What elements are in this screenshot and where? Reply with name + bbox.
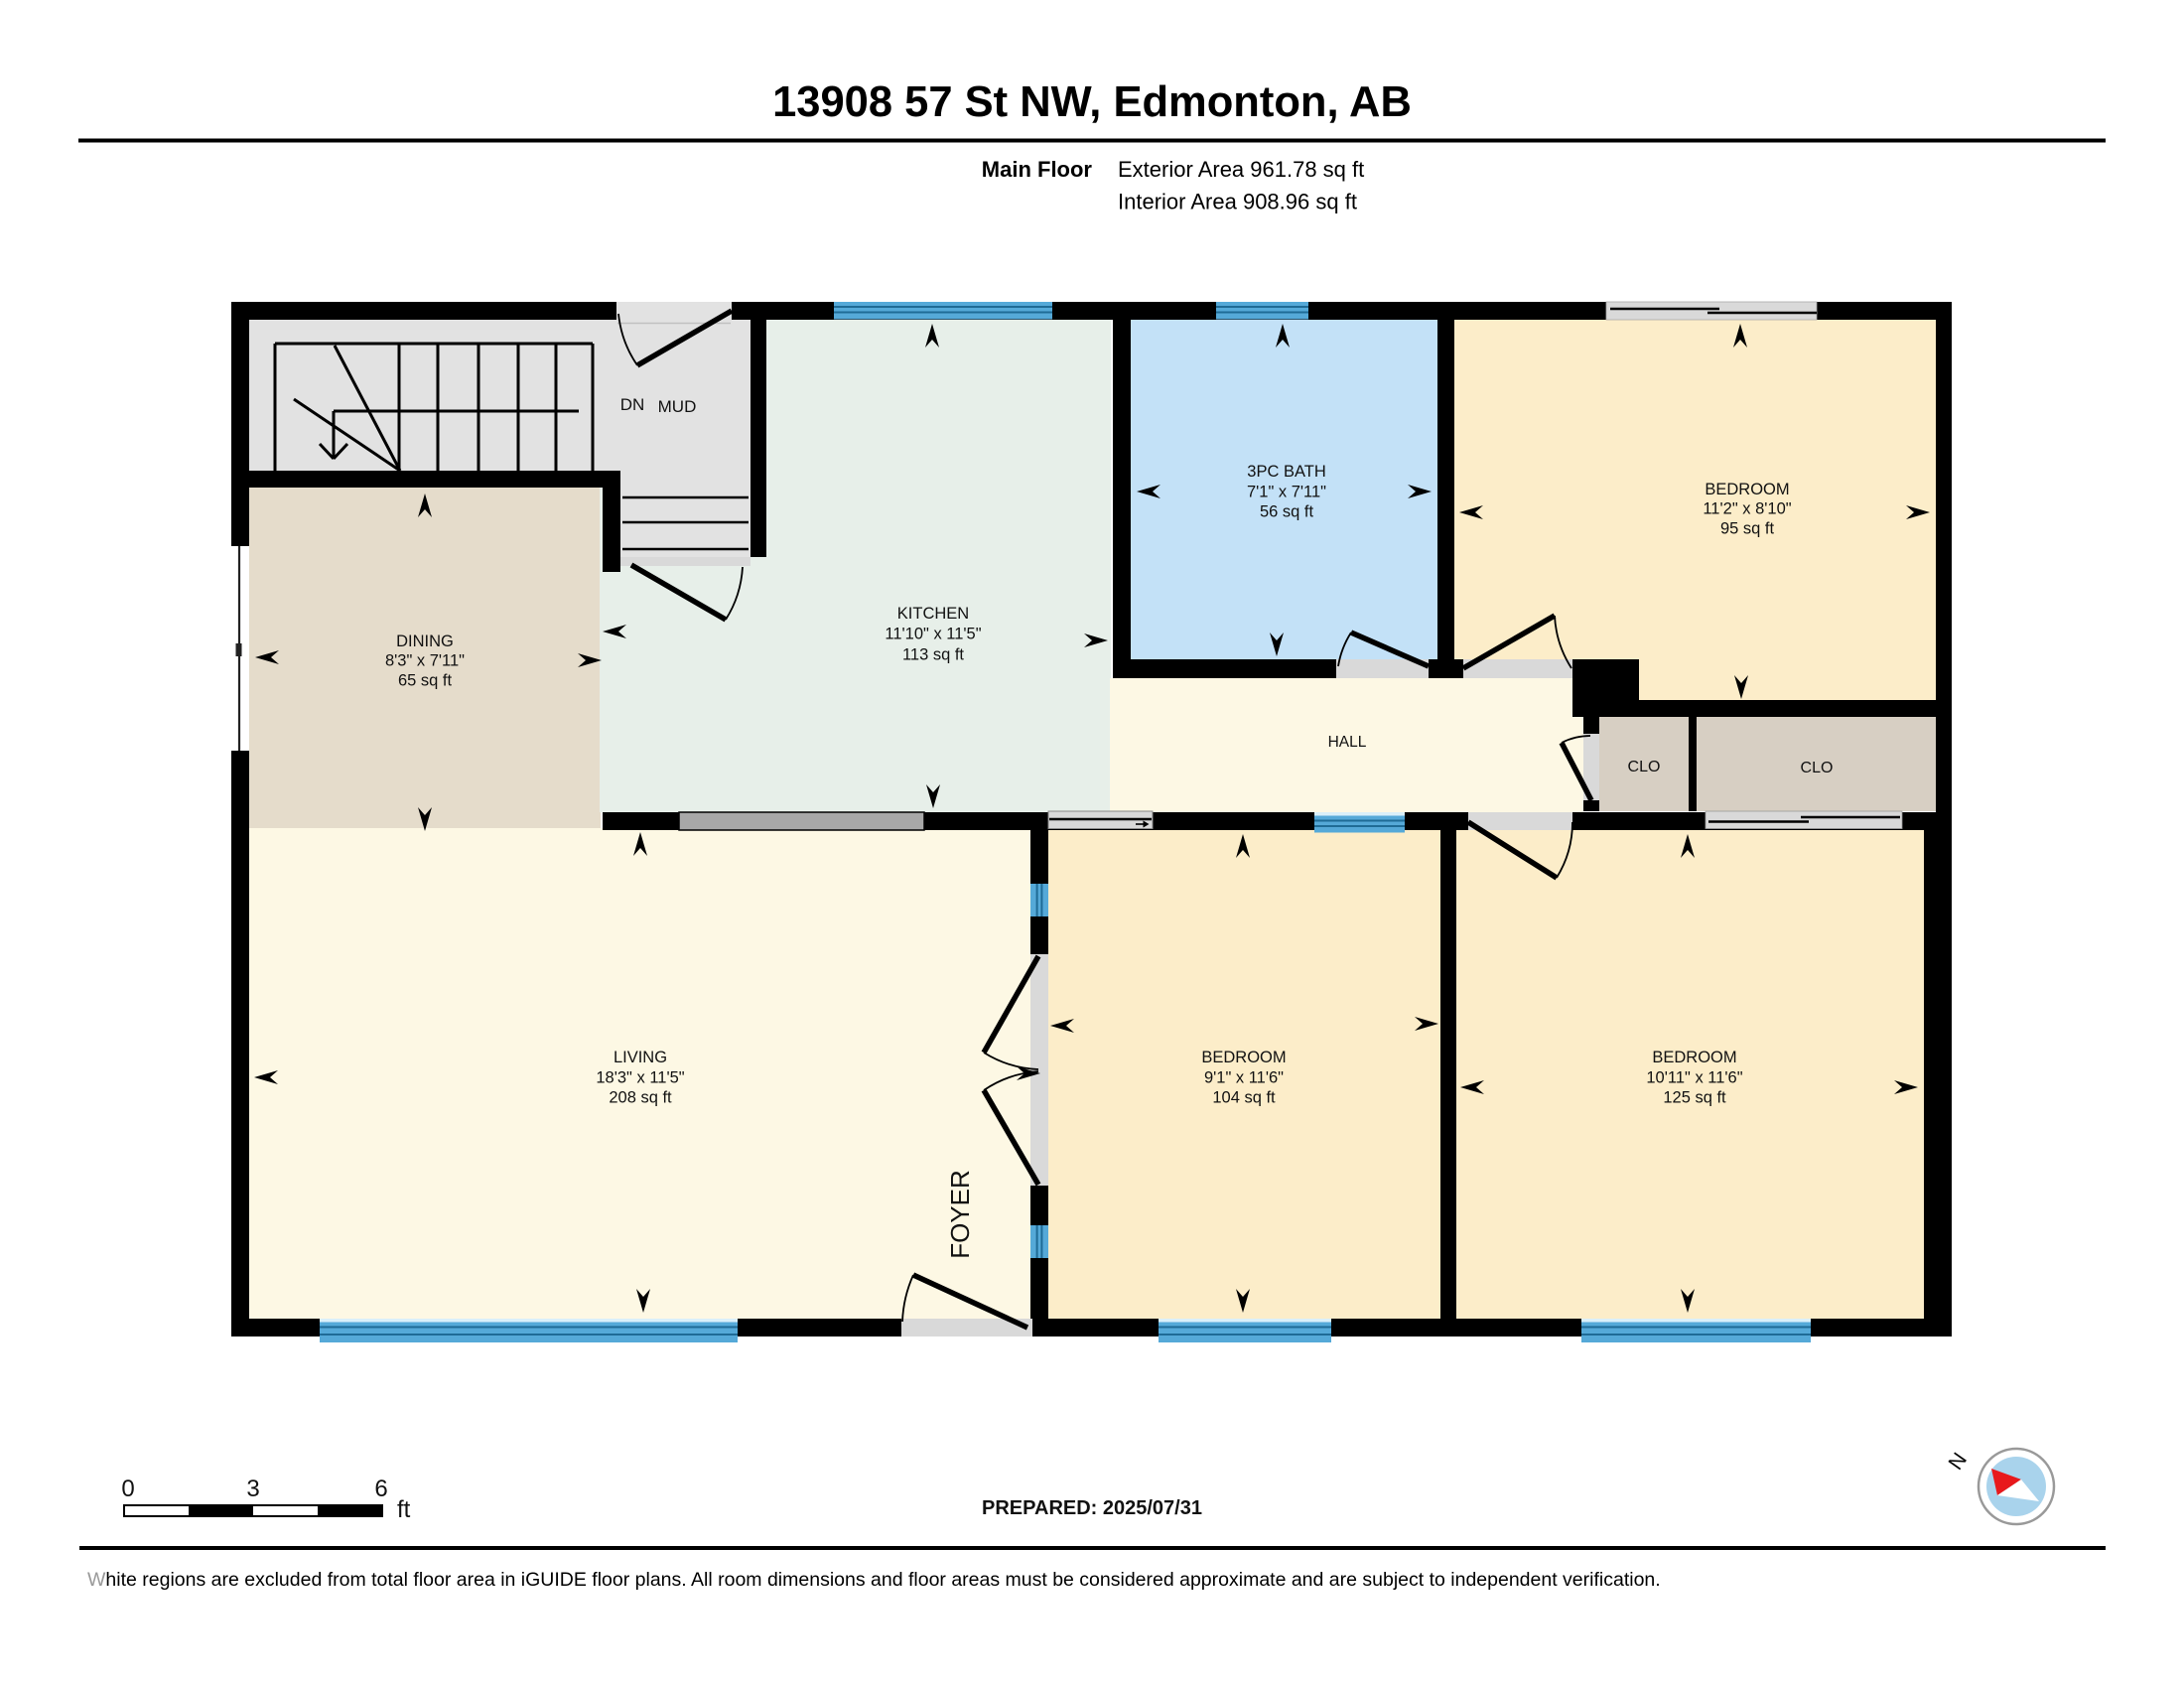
svg-text:CLO: CLO bbox=[1801, 760, 1834, 776]
svg-text:113 sq ft: 113 sq ft bbox=[902, 645, 964, 663]
svg-text:PREPARED: 2025/07/31: PREPARED: 2025/07/31 bbox=[982, 1497, 1202, 1519]
svg-text:208 sq ft: 208 sq ft bbox=[609, 1089, 672, 1107]
svg-text:DN: DN bbox=[620, 395, 645, 414]
svg-text:125 sq ft: 125 sq ft bbox=[1663, 1089, 1726, 1107]
svg-text:56 sq ft: 56 sq ft bbox=[1260, 502, 1314, 520]
svg-text:8'3" x 7'11": 8'3" x 7'11" bbox=[385, 652, 465, 670]
svg-text:BEDROOM: BEDROOM bbox=[1652, 1049, 1736, 1066]
svg-text:0: 0 bbox=[121, 1476, 134, 1502]
svg-text:HALL: HALL bbox=[1328, 734, 1367, 751]
svg-text:ft: ft bbox=[397, 1496, 411, 1523]
svg-text:MUD: MUD bbox=[658, 397, 697, 416]
svg-text:65 sq ft: 65 sq ft bbox=[398, 671, 453, 689]
svg-text:6: 6 bbox=[374, 1476, 387, 1502]
svg-text:9'1" x 11'6": 9'1" x 11'6" bbox=[1204, 1068, 1284, 1086]
svg-text:95 sq ft: 95 sq ft bbox=[1720, 519, 1775, 537]
svg-text:LIVING: LIVING bbox=[614, 1049, 667, 1066]
svg-text:104 sq ft: 104 sq ft bbox=[1212, 1089, 1276, 1107]
svg-text:Exterior Area 961.78 sq ft: Exterior Area 961.78 sq ft bbox=[1118, 157, 1364, 182]
svg-text:11'2" x 8'10": 11'2" x 8'10" bbox=[1703, 500, 1791, 518]
svg-text:BEDROOM: BEDROOM bbox=[1705, 481, 1789, 498]
svg-text:KITCHEN: KITCHEN bbox=[897, 605, 969, 623]
svg-text:7'1" x 7'11": 7'1" x 7'11" bbox=[1247, 483, 1326, 500]
svg-text:White regions are excluded fro: White regions are excluded from total fl… bbox=[87, 1569, 1661, 1591]
svg-text:DINING: DINING bbox=[396, 633, 454, 650]
svg-text:18'3" x 11'5": 18'3" x 11'5" bbox=[596, 1068, 684, 1086]
svg-text:FOYER: FOYER bbox=[945, 1170, 975, 1259]
svg-text:Interior Area 908.96 sq ft: Interior Area 908.96 sq ft bbox=[1118, 190, 1357, 214]
svg-text:3PC BATH: 3PC BATH bbox=[1247, 463, 1325, 481]
svg-text:Main Floor: Main Floor bbox=[982, 157, 1093, 182]
svg-text:BEDROOM: BEDROOM bbox=[1201, 1049, 1286, 1066]
svg-text:10'11" x 11'6": 10'11" x 11'6" bbox=[1646, 1068, 1742, 1086]
svg-text:11'10" x 11'5": 11'10" x 11'5" bbox=[885, 626, 981, 643]
svg-text:CLO: CLO bbox=[1628, 759, 1661, 775]
svg-text:13908 57 St NW, Edmonton, AB: 13908 57 St NW, Edmonton, AB bbox=[772, 78, 1412, 126]
svg-text:3: 3 bbox=[246, 1476, 259, 1502]
